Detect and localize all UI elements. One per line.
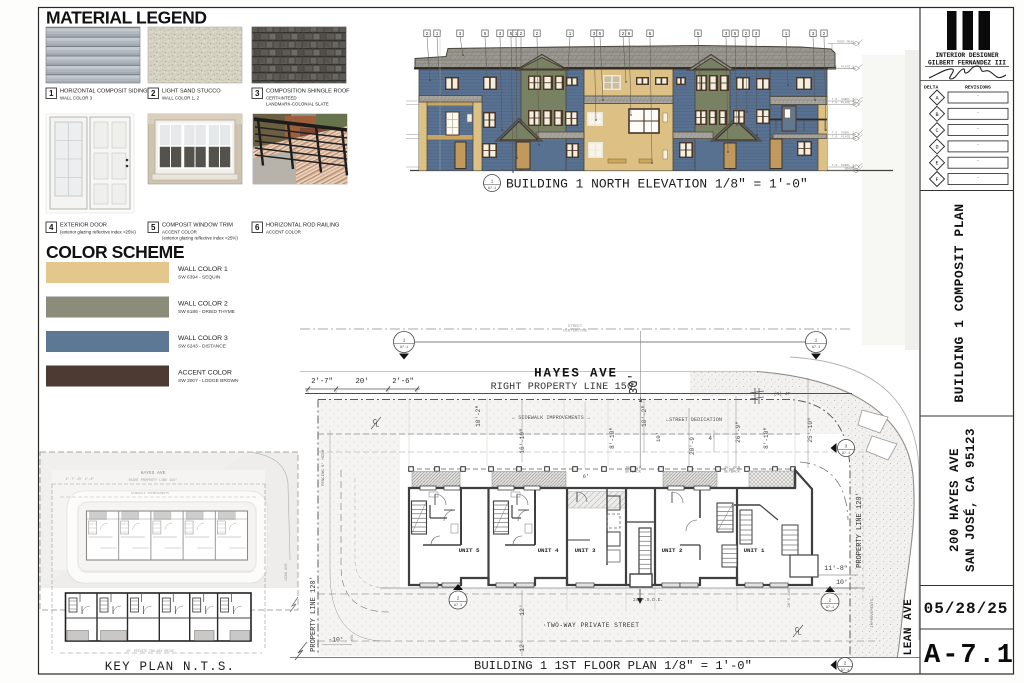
svg-text:A7.1: A7.1 xyxy=(841,669,849,673)
svg-text:1: 1 xyxy=(491,179,494,185)
svg-text:10'-2": 10'-2" xyxy=(641,405,648,427)
svg-text:HORIZONTAL COMPOSIT SIDING: HORIZONTAL COMPOSIT SIDING xyxy=(60,89,148,95)
svg-text:BUILDING 1 1ST FLOOR PLAN 1/8": BUILDING 1 1ST FLOOR PLAN 1/8" = 1'-0" xyxy=(474,659,752,673)
svg-text:·TWO-WAY PRIVATE STREET: ·TWO-WAY PRIVATE STREET xyxy=(543,622,640,629)
svg-text:6: 6 xyxy=(255,223,260,232)
svg-text:2'-7" 20' 2'-6": 2'-7" 20' 2'-6" xyxy=(66,477,95,481)
svg-text:3: 3 xyxy=(845,444,848,450)
svg-text:2: 2 xyxy=(151,89,156,98)
svg-text:LEAN AVE: LEAN AVE xyxy=(285,563,289,580)
svg-text:HAYES AVE: HAYES AVE xyxy=(534,367,618,381)
svg-text:T.O. PLATE 3: T.O. PLATE 3 xyxy=(832,64,854,68)
svg-text:1: 1 xyxy=(785,31,788,37)
svg-text:2'-6": 2'-6" xyxy=(392,378,414,386)
svg-text:STREET: STREET xyxy=(568,325,583,329)
svg-text:-: - xyxy=(977,94,980,99)
svg-text:WALL COLOR 3: WALL COLOR 3 xyxy=(178,335,228,342)
svg-text:3: 3 xyxy=(755,31,758,37)
svg-text:1: 1 xyxy=(49,89,54,98)
svg-text:HAYES AVE: HAYES AVE xyxy=(141,470,166,476)
svg-text:RIGHT PROPERTY LINE 150': RIGHT PROPERTY LINE 150' xyxy=(129,478,178,483)
svg-text:WALL COLOR 2: WALL COLOR 2 xyxy=(178,301,228,308)
svg-text:16'-10": 16'-10" xyxy=(519,428,526,453)
svg-text:3: 3 xyxy=(255,89,260,98)
svg-text:1: 1 xyxy=(569,31,572,37)
svg-text:-10': -10' xyxy=(328,637,344,644)
svg-text:2: 2 xyxy=(829,598,832,604)
svg-text:PROPERTY LINE 120': PROPERTY LINE 120' xyxy=(856,492,864,568)
svg-text:1: 1 xyxy=(515,31,518,37)
svg-text:3: 3 xyxy=(593,31,596,37)
svg-text:5: 5 xyxy=(484,31,487,37)
svg-text:T.O. PLATE 1: T.O. PLATE 1 xyxy=(832,135,854,139)
svg-text:REVISIONS: REVISIONS xyxy=(965,85,991,91)
svg-text:ACCENT COLOR: ACCENT COLOR xyxy=(162,230,197,235)
svg-text:INTERIOR DESIGNER: INTERIOR DESIGNER xyxy=(935,52,998,59)
svg-text:B: B xyxy=(935,112,938,118)
svg-text:11'-8": 11'-8" xyxy=(824,565,848,572)
svg-text:6: 6 xyxy=(649,31,652,37)
svg-text:2x P.S.D.E.: 2x P.S.D.E. xyxy=(633,597,663,603)
svg-text:BUILDING 1 NORTH ELEVATION 1/8: BUILDING 1 NORTH ELEVATION 1/8" = 1'-0" xyxy=(506,177,808,192)
svg-text:KEY PLAN N.T.S.: KEY PLAN N.T.S. xyxy=(105,660,236,674)
svg-text:BUILDING 1 COMPOSIT PLAN: BUILDING 1 COMPOSIT PLAN xyxy=(952,203,967,402)
svg-text:6': 6' xyxy=(583,473,590,480)
svg-text:10': 10' xyxy=(655,432,662,442)
svg-text:E: E xyxy=(935,161,938,167)
svg-text:(exterior glazing reflective i: (exterior glazing reflective index <25%) xyxy=(60,230,136,235)
svg-text:SW 6243 - DISTANCE: SW 6243 - DISTANCE xyxy=(178,344,226,350)
svg-text:2: 2 xyxy=(457,596,460,602)
svg-text:HORIZONTAL ROD RAILING: HORIZONTAL ROD RAILING xyxy=(266,223,339,229)
svg-text:-: - xyxy=(977,110,980,115)
svg-text:1: 1 xyxy=(815,338,818,344)
svg-text:W5N: W5N xyxy=(351,635,355,641)
svg-text:8'-10": 8'-10" xyxy=(763,427,770,449)
svg-text:D: D xyxy=(935,144,938,150)
svg-text:SAN JOSÉ, CA 95123: SAN JOSÉ, CA 95123 xyxy=(963,428,978,572)
svg-text:2: 2 xyxy=(745,31,748,37)
svg-text:5: 5 xyxy=(697,31,700,37)
svg-text:3: 3 xyxy=(725,31,728,37)
svg-text:-: - xyxy=(977,127,980,132)
svg-text:UNIT 4: UNIT 4 xyxy=(538,547,559,554)
svg-text:2: 2 xyxy=(426,31,429,37)
svg-text:05/28/25: 05/28/25 xyxy=(924,600,1009,618)
svg-text:(exterior glazing reflective i: (exterior glazing reflective index <25%) xyxy=(162,236,238,241)
svg-text:6: 6 xyxy=(628,31,631,37)
svg-text:SW 6394 - SEQUIN: SW 6394 - SEQUIN xyxy=(178,275,221,281)
svg-text:UNIT 1: UNIT 1 xyxy=(744,547,765,554)
svg-text:1: 1 xyxy=(403,338,406,344)
svg-text:LEAN AVE: LEAN AVE xyxy=(903,599,915,656)
svg-text:GRADE: GRADE xyxy=(845,167,854,171)
svg-text:20'S AVE: 20'S AVE xyxy=(787,588,792,608)
svg-text:COMPOSITION SHINGLE ROOF: COMPOSITION SHINGLE ROOF xyxy=(266,89,350,95)
svg-text:LIGHT SAND STUCCO: LIGHT SAND STUCCO xyxy=(162,89,221,95)
svg-text:ROOF PEAK: ROOF PEAK xyxy=(837,40,854,44)
svg-text:EXTERIOR DOOR: EXTERIOR DOOR xyxy=(60,223,107,229)
svg-text:UNIT 2: UNIT 2 xyxy=(662,547,683,554)
svg-text:4': 4' xyxy=(708,435,715,442)
svg-text:2: 2 xyxy=(844,661,847,667)
svg-text:WALL COLOR 1: WALL COLOR 1 xyxy=(178,266,228,273)
svg-text:200 HAYES AVE: 200 HAYES AVE xyxy=(948,448,962,552)
svg-text:2: 2 xyxy=(622,31,625,37)
svg-text:CERTAINTEED: CERTAINTEED xyxy=(266,96,297,101)
svg-text:A-7.1: A-7.1 xyxy=(924,641,1015,671)
svg-text:UNIT 5: UNIT 5 xyxy=(459,547,480,554)
svg-text:3: 3 xyxy=(459,31,462,37)
svg-text:A7.1: A7.1 xyxy=(842,452,850,456)
svg-text:ACCENT COLOR: ACCENT COLOR xyxy=(266,230,301,235)
svg-text:GILBERT FERNANDEZ III: GILBERT FERNANDEZ III xyxy=(928,60,1006,67)
svg-text:SETBACK: SETBACK xyxy=(724,471,741,475)
svg-text:IMPROVEMENTS→: IMPROVEMENTS→ xyxy=(871,596,875,628)
svg-text:CENTERLINE: CENTERLINE xyxy=(563,330,588,334)
svg-text:20'-9: 20'-9 xyxy=(689,437,696,455)
svg-text:10'-2": 10'-2" xyxy=(475,405,482,427)
svg-text:2: 2 xyxy=(823,31,826,37)
svg-text:WALL COLOR 1, 2: WALL COLOR 1, 2 xyxy=(162,96,200,101)
svg-text:10': 10' xyxy=(836,579,848,586)
svg-text:-: - xyxy=(977,159,980,164)
svg-text:DELTA: DELTA xyxy=(924,85,939,91)
svg-text:COMPOSIT WINDOW TRIM: COMPOSIT WINDOW TRIM xyxy=(162,223,233,229)
svg-text:3: 3 xyxy=(499,31,502,37)
svg-text:-: - xyxy=(977,176,980,181)
svg-text:UNIT 3: UNIT 3 xyxy=(575,547,596,554)
svg-text:MATERIAL LEGEND: MATERIAL LEGEND xyxy=(46,8,207,28)
svg-text:8'-10": 8'-10" xyxy=(609,427,616,449)
svg-text:1: 1 xyxy=(436,31,439,37)
svg-text:SW 6186 - DRIED THYME: SW 6186 - DRIED THYME xyxy=(178,309,235,315)
svg-text:2: 2 xyxy=(536,31,539,37)
svg-text:3: 3 xyxy=(812,31,815,37)
svg-text:RIGHT PROPERTY LINE 150': RIGHT PROPERTY LINE 150' xyxy=(491,381,640,393)
svg-text:ACCENT COLOR: ACCENT COLOR xyxy=(178,370,232,377)
svg-text:2'-7": 2'-7" xyxy=(311,378,333,386)
svg-text:5: 5 xyxy=(151,223,156,232)
svg-text:A7.1: A7.1 xyxy=(826,606,834,610)
svg-text:2: 2 xyxy=(520,31,523,37)
svg-text:COLOR SCHEME: COLOR SCHEME xyxy=(46,242,184,262)
svg-text:5: 5 xyxy=(510,31,513,37)
svg-text:12': 12' xyxy=(519,640,526,652)
svg-text:A7.1: A7.1 xyxy=(454,604,462,608)
svg-text:F: F xyxy=(935,177,938,183)
svg-text:T.O. PLATE 2: T.O. PLATE 2 xyxy=(832,101,854,105)
svg-text:← SIDEWALK IMPROVEMENTS →: ← SIDEWALK IMPROVEMENTS → xyxy=(512,415,591,421)
svg-text:-: - xyxy=(977,143,980,148)
svg-text:12': 12' xyxy=(519,604,526,616)
svg-text:LANDMARK-COLONIAL SLATE: LANDMARK-COLONIAL SLATE xyxy=(266,102,329,107)
svg-text:SW 3007 - LODGE BROWN: SW 3007 - LODGE BROWN xyxy=(178,378,239,384)
svg-text:WALL COLOR 3: WALL COLOR 3 xyxy=(60,96,93,101)
svg-text:4: 4 xyxy=(49,223,54,232)
svg-text:20': 20' xyxy=(356,378,369,386)
svg-text:30': 30' xyxy=(627,373,641,395)
svg-text:20' PRIVATE TWO-WAY DRIVE: 20' PRIVATE TWO-WAY DRIVE xyxy=(126,649,174,653)
svg-text:5: 5 xyxy=(599,31,602,37)
svg-text:(N) JP: (N) JP xyxy=(774,391,791,397)
svg-text:A7.1: A7.1 xyxy=(400,346,408,350)
svg-text:FENCING 6' HIGH: FENCING 6' HIGH xyxy=(321,449,326,486)
svg-text:A7.1: A7.1 xyxy=(812,346,820,350)
svg-text:SIDEWALK IMPROVEMENTS: SIDEWALK IMPROVEMENTS xyxy=(131,492,169,495)
svg-text:5: 5 xyxy=(734,31,737,37)
svg-text:C: C xyxy=(935,128,938,134)
svg-text:←STREET DEDICATION: ←STREET DEDICATION xyxy=(666,417,722,423)
svg-text:PROPERTY LINE 120': PROPERTY LINE 120' xyxy=(310,576,318,652)
svg-text:A7.1: A7.1 xyxy=(488,187,496,191)
